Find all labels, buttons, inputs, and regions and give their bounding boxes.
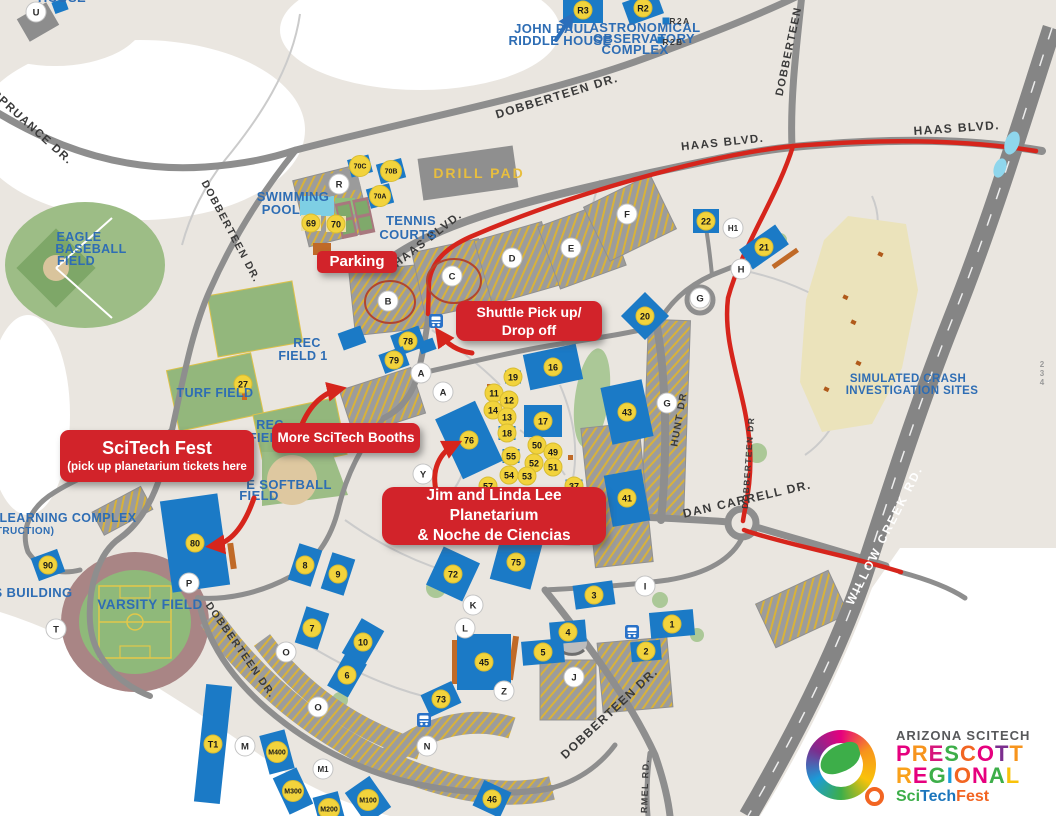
lot-marker-F: F	[617, 204, 637, 224]
svg-text:J: J	[571, 672, 576, 683]
map-label: TURF FIELD	[177, 386, 254, 400]
svg-text:F: F	[624, 209, 630, 220]
building-number: 70B	[385, 169, 398, 176]
svg-text:L: L	[462, 623, 468, 634]
building-4: 4	[549, 619, 587, 644]
svg-text:H1: H1	[728, 224, 739, 233]
lot-marker-M1: M1	[313, 759, 333, 779]
map-label: TENNIS	[386, 213, 436, 228]
building-53: 53	[518, 467, 536, 485]
building-69: 69	[301, 214, 321, 232]
scitech-fest-callout: SciTech Fest (pick up planetarium ticket…	[60, 430, 254, 482]
building-number: 21	[759, 242, 769, 252]
logo-prescott: PRESCOTT	[896, 743, 1030, 765]
building-13: 13	[498, 408, 516, 426]
lot-marker-C: C	[442, 266, 462, 286]
building-number: M100	[359, 798, 377, 805]
building-number: M200	[320, 807, 338, 814]
svg-text:M: M	[241, 741, 249, 752]
svg-text:O: O	[314, 702, 321, 713]
map-label: RMEL RD.	[639, 758, 651, 813]
svg-text:G: G	[696, 293, 703, 304]
lot-marker-Z: Z	[494, 681, 514, 701]
svg-text:T: T	[53, 624, 59, 635]
svg-text:H: H	[738, 264, 745, 275]
svg-text:O: O	[282, 647, 289, 658]
map-label: COURTS	[379, 227, 436, 242]
building-number: 11	[489, 388, 499, 398]
building-number: 79	[389, 355, 399, 365]
lot-marker-P: P	[179, 573, 199, 593]
map-label: FIELD 1	[278, 349, 327, 363]
building-number: 4	[565, 627, 570, 637]
svg-text:U: U	[33, 7, 40, 18]
building-number: 55	[506, 451, 516, 461]
map-label: HOUSE	[38, 0, 86, 5]
building-number: 41	[622, 493, 632, 503]
building-number: 52	[529, 458, 539, 468]
building-12: 12	[500, 391, 518, 409]
more-booths-callout: More SciTech Booths	[272, 423, 420, 453]
building-number: 8	[302, 560, 307, 570]
parking-callout: Parking	[317, 251, 397, 273]
building-number: 54	[504, 470, 514, 480]
svg-text:Y: Y	[420, 469, 427, 480]
logo-scitechfest: SciTechFest	[896, 788, 1030, 806]
lot-marker-D: D	[502, 248, 522, 268]
lot-marker-O: O	[308, 697, 328, 717]
map-label: REC	[293, 336, 321, 350]
building-number: 45	[479, 657, 489, 667]
building-number: 16	[548, 362, 558, 372]
parking-callout-label: Parking	[317, 252, 397, 272]
map-canvas: R3R270C70B70A697078792016191112141317187…	[0, 0, 1056, 816]
shuttle-callout-line2: Drop off	[456, 321, 602, 339]
building-number: 43	[622, 407, 632, 417]
lot-marker-Y: Y	[413, 464, 433, 484]
svg-text:P: P	[186, 578, 193, 589]
map-label: (CONSTRUCTION)	[0, 526, 54, 537]
lot-marker-N: N	[417, 736, 437, 756]
map-label: FIELD	[57, 254, 95, 268]
more-booths-label: More SciTech Booths	[272, 429, 420, 447]
svg-text:R: R	[336, 179, 343, 190]
building-number: M400	[268, 750, 286, 757]
lot-marker-B: B	[378, 291, 398, 311]
building-number: R3	[577, 5, 589, 15]
campus-map: R3R270C70B70A697078792016191112141317187…	[0, 0, 1056, 816]
building-number: 7	[309, 623, 314, 633]
planetarium-line1: Jim and Linda Lee Planetarium	[382, 486, 606, 526]
bus-stop-icon	[417, 713, 431, 727]
lot-marker-A: A	[411, 363, 431, 383]
building-51: 51	[544, 458, 562, 476]
map-label: R2A	[669, 16, 690, 26]
svg-text:N: N	[424, 741, 431, 752]
svg-text:K: K	[470, 600, 477, 611]
building-number: 69	[306, 218, 316, 228]
building-number: M300	[284, 789, 302, 796]
building-50: 50	[528, 436, 546, 454]
building-number: 2	[643, 646, 648, 656]
lot-marker-I: I	[635, 576, 655, 596]
building-number: T1	[208, 739, 219, 749]
building-number: 1	[669, 619, 674, 629]
map-label: VARSITY FIELD	[97, 597, 202, 612]
building-number: 70C	[354, 164, 367, 171]
building-number: 20	[640, 311, 650, 321]
svg-text:A: A	[440, 387, 447, 398]
lot-marker-R: R	[329, 174, 349, 194]
building-number: R2	[637, 3, 649, 13]
building-number: 6	[344, 670, 349, 680]
building-number: 76	[464, 435, 474, 445]
lot-marker-G: G	[657, 393, 677, 413]
building-number: 78	[403, 336, 413, 346]
building-number: 18	[502, 428, 512, 438]
map-label: 3	[1040, 369, 1045, 378]
svg-text:D: D	[509, 253, 516, 264]
building-number: 53	[522, 471, 532, 481]
building-number: 80	[190, 538, 200, 548]
building-number: 13	[502, 412, 512, 422]
lot-marker-E: E	[561, 238, 581, 258]
map-label: COMPLEX	[601, 42, 668, 57]
lot-marker-O: O	[276, 642, 296, 662]
building-54: 54	[500, 466, 518, 484]
map-label: INVESTIGATION SITES	[846, 385, 979, 397]
map-label: 4	[1040, 378, 1045, 387]
map-label: SIMULATED CRASH	[850, 373, 966, 385]
building-number: 49	[548, 447, 558, 457]
map-label: S BUILDING	[0, 585, 73, 600]
building-55: 55	[502, 447, 520, 465]
lot-marker-A: A	[433, 382, 453, 402]
building-number: 14	[488, 405, 498, 415]
shuttle-callout: Shuttle Pick up/ Drop off	[456, 301, 602, 341]
building-19: 19	[504, 368, 522, 386]
map-label: POOL	[262, 202, 300, 217]
building-number: 70A	[374, 194, 387, 201]
svg-text:B: B	[385, 296, 392, 307]
planetarium-line2: & Noche de Ciencias	[382, 526, 606, 546]
map-label: R2B	[662, 37, 683, 47]
lot-marker-M: M	[235, 736, 255, 756]
building-number: 72	[448, 569, 458, 579]
building-number: 70	[331, 219, 341, 229]
svg-text:G: G	[663, 398, 670, 409]
building-number: 12	[504, 395, 514, 405]
building-number: 10	[358, 637, 368, 647]
building-number: 50	[532, 440, 542, 450]
scitech-fest-title: SciTech Fest	[60, 437, 254, 460]
svg-text:E: E	[568, 243, 574, 254]
building-17: 17	[524, 405, 562, 437]
svg-text:M1: M1	[317, 765, 329, 774]
building-70: 70	[326, 215, 346, 233]
building-number: 9	[335, 569, 340, 579]
building-number: 46	[487, 794, 497, 804]
svg-text:A: A	[418, 368, 425, 379]
building-22: 22	[693, 209, 719, 233]
lot-marker-H1: H1	[723, 218, 743, 238]
bus-stop-icon	[429, 314, 443, 328]
scitechfest-emblem-icon	[806, 730, 886, 814]
lot-marker-L: L	[455, 618, 475, 638]
building-number: 51	[548, 462, 558, 472]
planetarium-callout: Jim and Linda Lee Planetarium & Noche de…	[382, 487, 606, 545]
bus-stop-icon	[625, 625, 639, 639]
map-label: DRILL PAD	[433, 165, 524, 181]
lot-marker-J: J	[564, 667, 584, 687]
scitechfest-logo: ARIZONA SCITECH PRESCOTT REGIONAL SciTec…	[806, 722, 1030, 814]
building-number: 17	[538, 416, 548, 426]
lot-marker-K: K	[463, 595, 483, 615]
scitech-fest-subtitle: (pick up planetarium tickets here	[60, 460, 254, 475]
building-number: 75	[511, 557, 521, 567]
map-label: 2	[1040, 360, 1045, 369]
building-number: 5	[540, 647, 545, 657]
svg-text:C: C	[449, 271, 456, 282]
building-number: 19	[508, 372, 518, 382]
svg-text:Z: Z	[501, 686, 507, 697]
lot-marker-H: H	[731, 259, 751, 279]
building-number: 90	[43, 560, 53, 570]
svg-text:I: I	[644, 581, 647, 592]
building-18: 18	[498, 424, 516, 442]
logo-regional: REGIONAL	[896, 765, 1030, 787]
lot-marker-U: U	[26, 2, 46, 22]
building-number: 3	[591, 590, 596, 600]
building-2: 2	[630, 640, 662, 663]
building-number: 22	[701, 216, 711, 226]
lot-marker-G: G	[690, 288, 710, 308]
map-label: FIELD	[239, 488, 279, 503]
building-1: 1	[649, 609, 695, 639]
lot-marker-T: T	[46, 619, 66, 639]
map-label: LEARNING COMPLEX	[0, 511, 137, 525]
shuttle-callout-line1: Shuttle Pick up/	[456, 303, 602, 321]
building-number: 73	[436, 694, 446, 704]
